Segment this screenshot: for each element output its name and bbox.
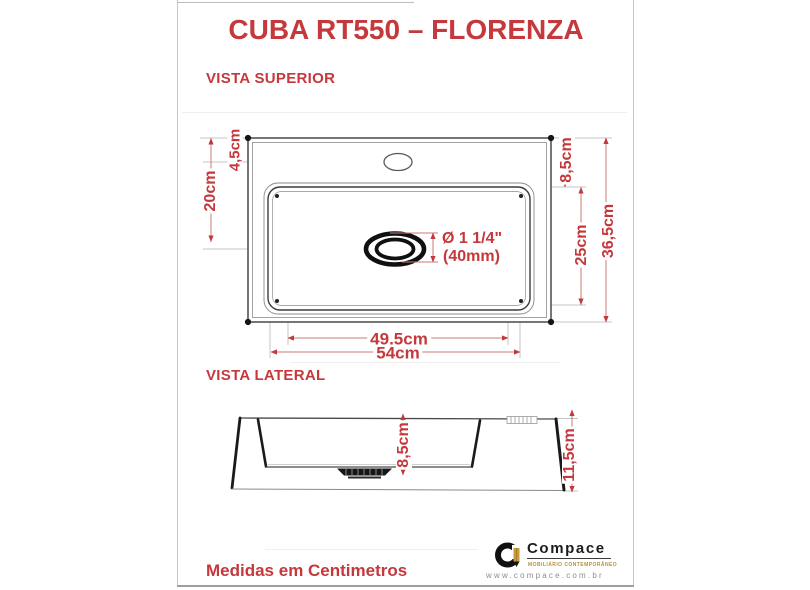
page-title: CUBA RT550 – FLORENZA	[178, 14, 634, 46]
drain-icon	[366, 234, 424, 265]
drain-diameter-inches: Ø 1 1/4"	[442, 231, 502, 247]
page-border-bottom	[177, 585, 634, 587]
faucet-hole-icon	[384, 154, 412, 171]
dimension-lines	[403, 410, 572, 492]
dim-top-to-faucet: 4,5cm	[228, 127, 243, 174]
overflow-slot-icon	[507, 417, 537, 424]
scan-artifact-line	[182, 112, 627, 113]
units-note: Medidas em Centimetros	[206, 561, 407, 581]
dim-top-to-basin: 8,5cm	[559, 135, 575, 184]
dim-total-height: 11,5cm	[562, 426, 578, 483]
page-border-right	[633, 0, 634, 587]
scan-artifact-line	[265, 549, 478, 550]
dimension-arrows	[400, 410, 574, 493]
dim-total-depth: 36,5cm	[601, 202, 617, 260]
brand-website: www.compace.com.br	[486, 571, 604, 580]
brand-mark-icon	[494, 540, 524, 570]
spec-sheet: CUBA RT550 – FLORENZA VISTA SUPERIOR VIS…	[0, 0, 810, 590]
side-view-heading: VISTA LATERAL	[206, 367, 325, 384]
brand-name: Compace	[527, 540, 606, 557]
dim-faucet-to-drain: 20cm	[203, 169, 219, 214]
brand-tagline: MOBILIÁRIO CONTEMPORÂNEO	[528, 562, 617, 568]
dim-total-width: 54cm	[373, 345, 422, 362]
top-view-drawing	[180, 120, 620, 365]
dim-basin-height: 8,5cm	[396, 420, 412, 469]
drain-diameter-mm: (40mm)	[443, 249, 500, 265]
top-view-heading: VISTA SUPERIOR	[206, 70, 335, 87]
drain-side-icon	[337, 469, 392, 478]
page-border-left	[177, 0, 178, 587]
dim-basin-depth-front: 25cm	[574, 223, 590, 268]
page-border-top	[177, 2, 414, 3]
brand-underline	[527, 558, 611, 559]
